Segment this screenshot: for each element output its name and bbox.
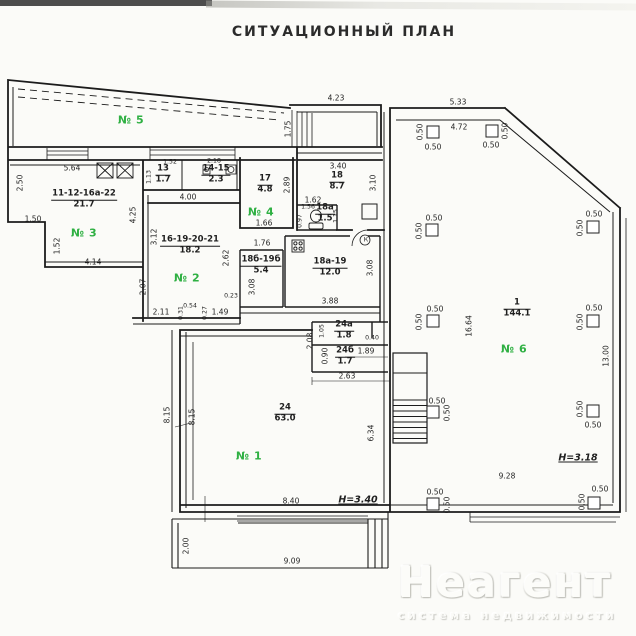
dimension-label: 0.50 [576, 401, 585, 418]
floor-plan-page: СИТУАЦИОННЫЙ ПЛАН № 5№ 3№ 4№ 2№ 1№ 611-1… [0, 0, 636, 636]
column-marker [427, 406, 440, 419]
room-label: 16-19-20-2118.2 [160, 236, 220, 257]
dimension-label: 2.11 [153, 308, 170, 317]
dimension-label: 8.15 [163, 407, 172, 424]
dimension-label: 2.18 [207, 158, 221, 165]
dimension-label: 0.50 [443, 497, 452, 514]
dimension-label: 9.28 [499, 472, 516, 481]
dimension-label: 0.97 [297, 214, 304, 228]
column-marker [427, 315, 440, 328]
dimension-label: 0.50 [586, 304, 603, 313]
dimension-label: 1.05 [319, 324, 326, 338]
dimension-label: 4.00 [180, 193, 197, 202]
dimension-label: 4.72 [451, 123, 468, 132]
dimension-label: 9.09 [284, 557, 301, 566]
room-area: 1.7 [155, 176, 170, 186]
dimension-label: 3.88 [322, 297, 339, 306]
dimension-label: 2.07 [139, 279, 148, 296]
room-label: 24б1.7 [335, 347, 355, 368]
dimension-label: 0.50 [578, 494, 587, 511]
room-label: 174.8 [257, 175, 272, 196]
dimension-label: 1.15 [333, 209, 340, 223]
plan-title: СИТУАЦИОННЫЙ ПЛАН [232, 24, 456, 40]
column-marker [587, 221, 600, 234]
dimension-label: 4.23 [328, 94, 345, 103]
dimension-label: 1.49 [212, 308, 229, 317]
ceiling-height-label: H=3.40 [338, 495, 377, 506]
room-area: 21.7 [51, 201, 117, 211]
column-marker [427, 498, 440, 511]
dimension-label: 0.27 [202, 306, 209, 320]
dimension-label: 1.76 [254, 239, 271, 248]
dimension-label: 8.40 [283, 497, 300, 506]
walls [8, 80, 620, 512]
dimension-label: 0.50 [443, 405, 452, 422]
column-marker [588, 497, 601, 510]
dimension-label: 0.50 [427, 305, 444, 314]
dimension-label: 1.52 [53, 238, 62, 255]
room-label: 2463.0 [275, 404, 296, 425]
room-label: 24а1.8 [334, 321, 354, 342]
room-label: 18б-19б5.4 [240, 256, 281, 277]
zone-number-label: № 2 [174, 272, 200, 285]
dimension-label: 1.56 [301, 204, 315, 211]
column-marker [486, 125, 499, 138]
dimension-label: 3.40 [330, 162, 347, 171]
room-area: 4.8 [257, 186, 272, 196]
room-area: 144.1 [504, 310, 531, 320]
floor-plan-drawing [0, 0, 636, 636]
dimension-label: 3.12 [150, 229, 159, 246]
zone-number-label: № 5 [118, 114, 144, 127]
dimension-label: 4.14 [85, 258, 102, 267]
inner-wall-lines [10, 87, 626, 512]
stove-icon [292, 240, 304, 252]
dimension-label: 0.31 [178, 306, 185, 320]
room-area: 2.3 [201, 176, 230, 186]
dimension-label: 1.13 [146, 170, 153, 184]
dimension-label: 0.50 [415, 314, 424, 331]
dimension-label: 2.62 [222, 250, 231, 267]
dimension-label: 0.50 [592, 485, 609, 494]
dimension-label: 1.66 [256, 219, 273, 228]
zone-number-label: № 6 [501, 343, 527, 356]
zone-number-label: № 3 [71, 227, 97, 240]
dimension-label: 0.50 [416, 124, 425, 141]
dimension-label: 3.08 [248, 279, 257, 296]
dimension-label: 0.50 [425, 143, 442, 152]
dimension-label: 0.50 [501, 123, 510, 140]
room-area: 8.7 [329, 183, 344, 193]
dimension-label: 0.23 [224, 293, 238, 300]
column-marker [587, 405, 600, 418]
dimension-label: 0.50 [483, 141, 500, 150]
room-label: 188.7 [329, 172, 344, 193]
dimension-label: 0.50 [586, 210, 603, 219]
column-marker [587, 315, 600, 328]
dimension-label: 8.15 [188, 409, 197, 426]
room-label: 11-12-16а-2221.7 [51, 190, 117, 211]
dimension-label: 0.50 [427, 488, 444, 497]
room-label: 14-152.3 [201, 165, 230, 186]
dimension-label: 2.89 [283, 177, 292, 194]
stairs-icon [393, 353, 427, 443]
dimension-label: 1.50 [25, 215, 42, 224]
dimension-label: 0.50 [576, 314, 585, 331]
room-area: 5.4 [240, 267, 281, 277]
dimension-label: 13.00 [602, 345, 611, 366]
room-area: 18.2 [160, 247, 220, 257]
dimension-label: 6.34 [367, 425, 376, 442]
zone-number-label: № 1 [236, 450, 262, 463]
dimension-label: 1.89 [358, 347, 375, 356]
dimension-label: 1.52 [163, 159, 177, 166]
dimension-label: 2.08 [306, 333, 315, 350]
room-area: 12.0 [313, 269, 348, 279]
room-area: 63.0 [275, 415, 296, 425]
dimension-label: 5.64 [64, 164, 81, 173]
column-marker [427, 126, 440, 139]
dimension-label: 3.08 [366, 260, 375, 277]
room-label: 131.7 [155, 165, 170, 186]
room-area: 1.7 [335, 358, 355, 368]
dimension-label: 0.90 [321, 348, 330, 365]
dimension-label: 0.50 [585, 421, 602, 430]
column-marker [426, 224, 439, 237]
room-label: 18а-1912.0 [313, 258, 348, 279]
balcony-outline [172, 512, 388, 568]
dimension-label: 4.25 [129, 207, 138, 224]
dimension-label: 0.54 [183, 303, 197, 310]
dimension-label: 1.75 [284, 121, 293, 138]
dimension-label: 0.50 [426, 214, 443, 223]
duct-icon [362, 204, 377, 219]
room-area: 1.8 [334, 332, 354, 342]
dimension-label: 0.40 [365, 335, 379, 342]
room-label: 1144.1 [504, 299, 531, 320]
dimension-label: 2.63 [339, 372, 356, 381]
dimension-label: 0.50 [415, 223, 424, 240]
ceiling-height-label: H=3.18 [558, 453, 597, 464]
dimension-label: 0.50 [576, 220, 585, 237]
zone-number-label: № 4 [248, 206, 274, 219]
dimension-label: 5.33 [450, 98, 467, 107]
dimension-label: К [364, 237, 368, 244]
dimension-label: 2.50 [16, 175, 25, 192]
dimension-label: 16.64 [465, 315, 474, 336]
dimension-label: 3.10 [369, 175, 378, 192]
dimension-label: 2.00 [182, 538, 191, 555]
